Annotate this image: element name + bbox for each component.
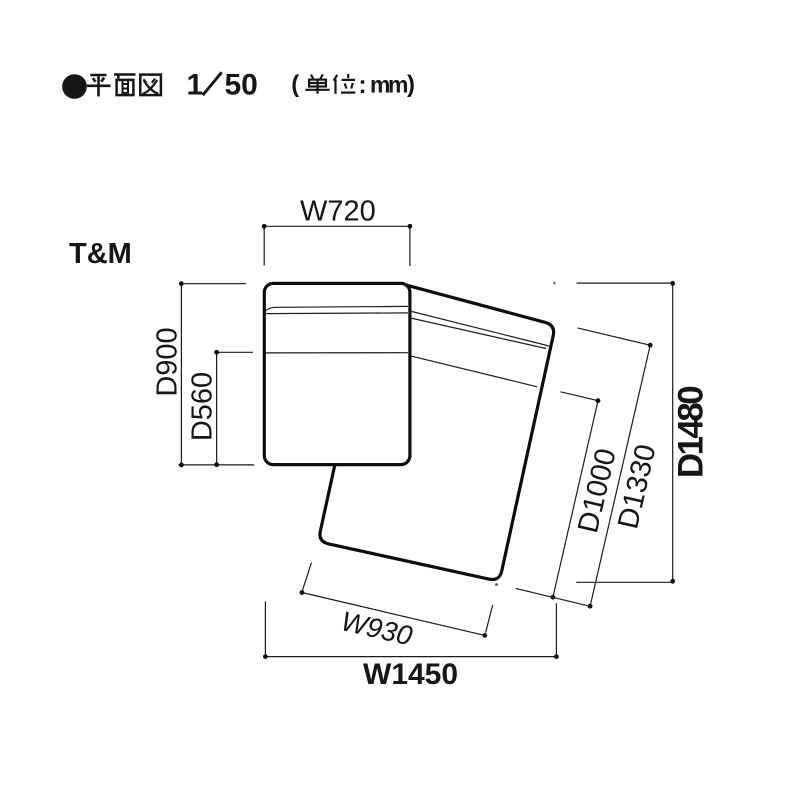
svg-text:D560: D560 [187, 372, 219, 441]
svg-text:50: 50 [225, 69, 258, 102]
svg-text:1: 1 [187, 69, 204, 102]
svg-text:D1480: D1480 [672, 386, 711, 478]
svg-text:T&M: T&M [69, 238, 132, 270]
svg-text:mm: mm [370, 72, 408, 98]
svg-text:): ) [407, 71, 415, 98]
svg-text:W1450: W1450 [363, 658, 458, 691]
svg-text:W720: W720 [300, 196, 376, 228]
svg-text:(: ( [291, 71, 299, 98]
svg-text:D900: D900 [152, 327, 184, 396]
